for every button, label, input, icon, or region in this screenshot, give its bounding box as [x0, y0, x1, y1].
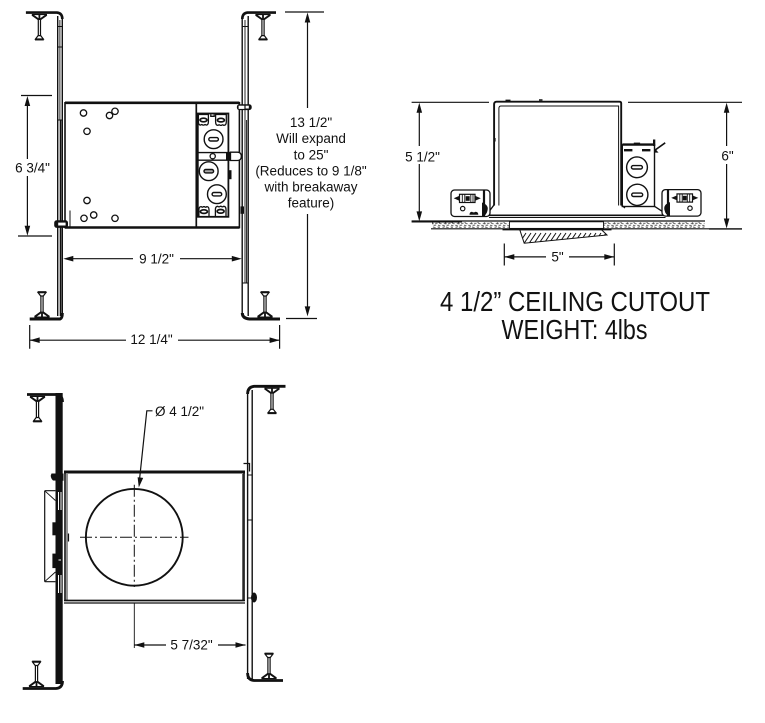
- svg-text:5 1/2": 5 1/2": [405, 150, 440, 165]
- svg-text:5": 5": [551, 250, 564, 265]
- svg-text:6 3/4": 6 3/4": [15, 161, 50, 176]
- svg-text:9 1/2": 9 1/2": [139, 252, 174, 267]
- svg-text:to 25": to 25": [294, 148, 329, 163]
- svg-text:with breakaway: with breakaway: [263, 180, 357, 195]
- svg-text:Ø 4 1/2": Ø 4 1/2": [155, 404, 204, 419]
- svg-text:6": 6": [721, 149, 734, 164]
- svg-text:12 1/4": 12 1/4": [130, 332, 173, 347]
- svg-text:WEIGHT: 4lbs: WEIGHT: 4lbs: [502, 314, 648, 345]
- svg-text:13 1/2": 13 1/2": [290, 115, 333, 130]
- svg-text:feature): feature): [288, 196, 335, 211]
- svg-text:5 7/32": 5 7/32": [170, 638, 213, 653]
- svg-text:Will expand: Will expand: [276, 131, 346, 146]
- svg-text:4 1/2” CEILING CUTOUT: 4 1/2” CEILING CUTOUT: [440, 286, 710, 317]
- svg-text:(Reduces to 9 1/8": (Reduces to 9 1/8": [255, 164, 367, 179]
